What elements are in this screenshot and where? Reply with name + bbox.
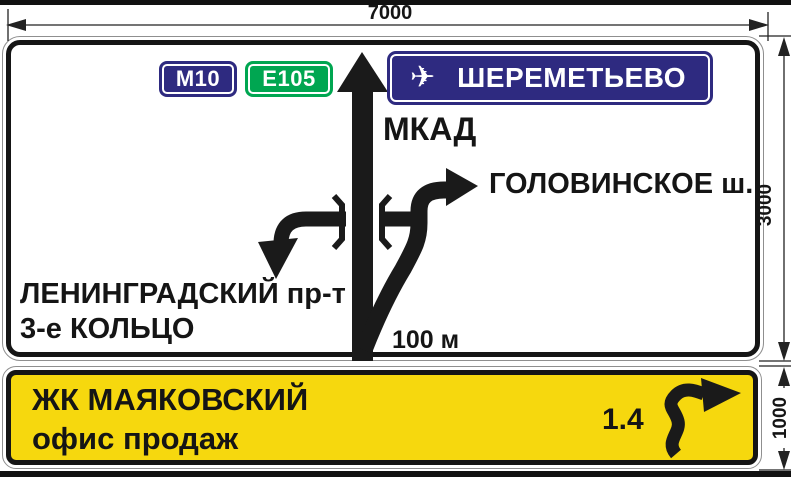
airport-panel-inner: ✈ ШЕРЕМЕТЬЕВО: [390, 54, 710, 102]
main-height-dim-arrow-top: [778, 37, 790, 56]
info-height-dim-arrow-top: [778, 367, 790, 386]
route-badge-e105: E105: [245, 61, 333, 97]
airport-panel: ✈ ШЕРЕМЕТЬЕВО: [387, 51, 713, 105]
info-sign-distance: 1.4: [602, 403, 644, 437]
main-height-dimension-label: 3000: [755, 165, 777, 245]
road-sign-layout: М10 E105 ✈ ШЕРЕМЕТЬЕВО МКАД ГОЛОВИНСКОЕ …: [0, 0, 791, 477]
info-sign-subtitle: офис продаж: [32, 421, 238, 457]
width-dimension-label: 7000: [348, 2, 432, 25]
width-dim-arrow-left: [6, 19, 26, 31]
straight-road-label: МКАД: [383, 111, 476, 148]
bottom-edge-strip: [0, 471, 791, 477]
route-badge-e105-label: E105: [248, 64, 330, 94]
distance-label: 100 м: [392, 326, 459, 355]
airplane-icon: ✈: [410, 63, 435, 93]
left-exit-label-line2: 3-е КОЛЬЦО: [20, 312, 346, 347]
left-exit-label: ЛЕНИНГРАДСКИЙ пр-т 3-е КОЛЬЦО: [20, 277, 346, 347]
airport-panel-label: ШЕРЕМЕТЬЕВО: [457, 62, 686, 94]
main-height-dim-arrow-bottom: [778, 342, 790, 361]
info-height-dimension-label: 1000: [770, 388, 791, 448]
right-exit-label: ГОЛОВИНСКОЕ ш.: [489, 168, 753, 201]
info-height-dim-arrow-bottom: [778, 451, 790, 470]
route-badge-m10-label: М10: [162, 64, 234, 94]
left-exit-label-line1: ЛЕНИНГРАДСКИЙ пр-т: [20, 277, 346, 312]
width-dim-arrow-right: [749, 19, 769, 31]
route-badge-m10: М10: [159, 61, 237, 97]
info-sign-title: ЖК МАЯКОВСКИЙ: [32, 382, 308, 418]
